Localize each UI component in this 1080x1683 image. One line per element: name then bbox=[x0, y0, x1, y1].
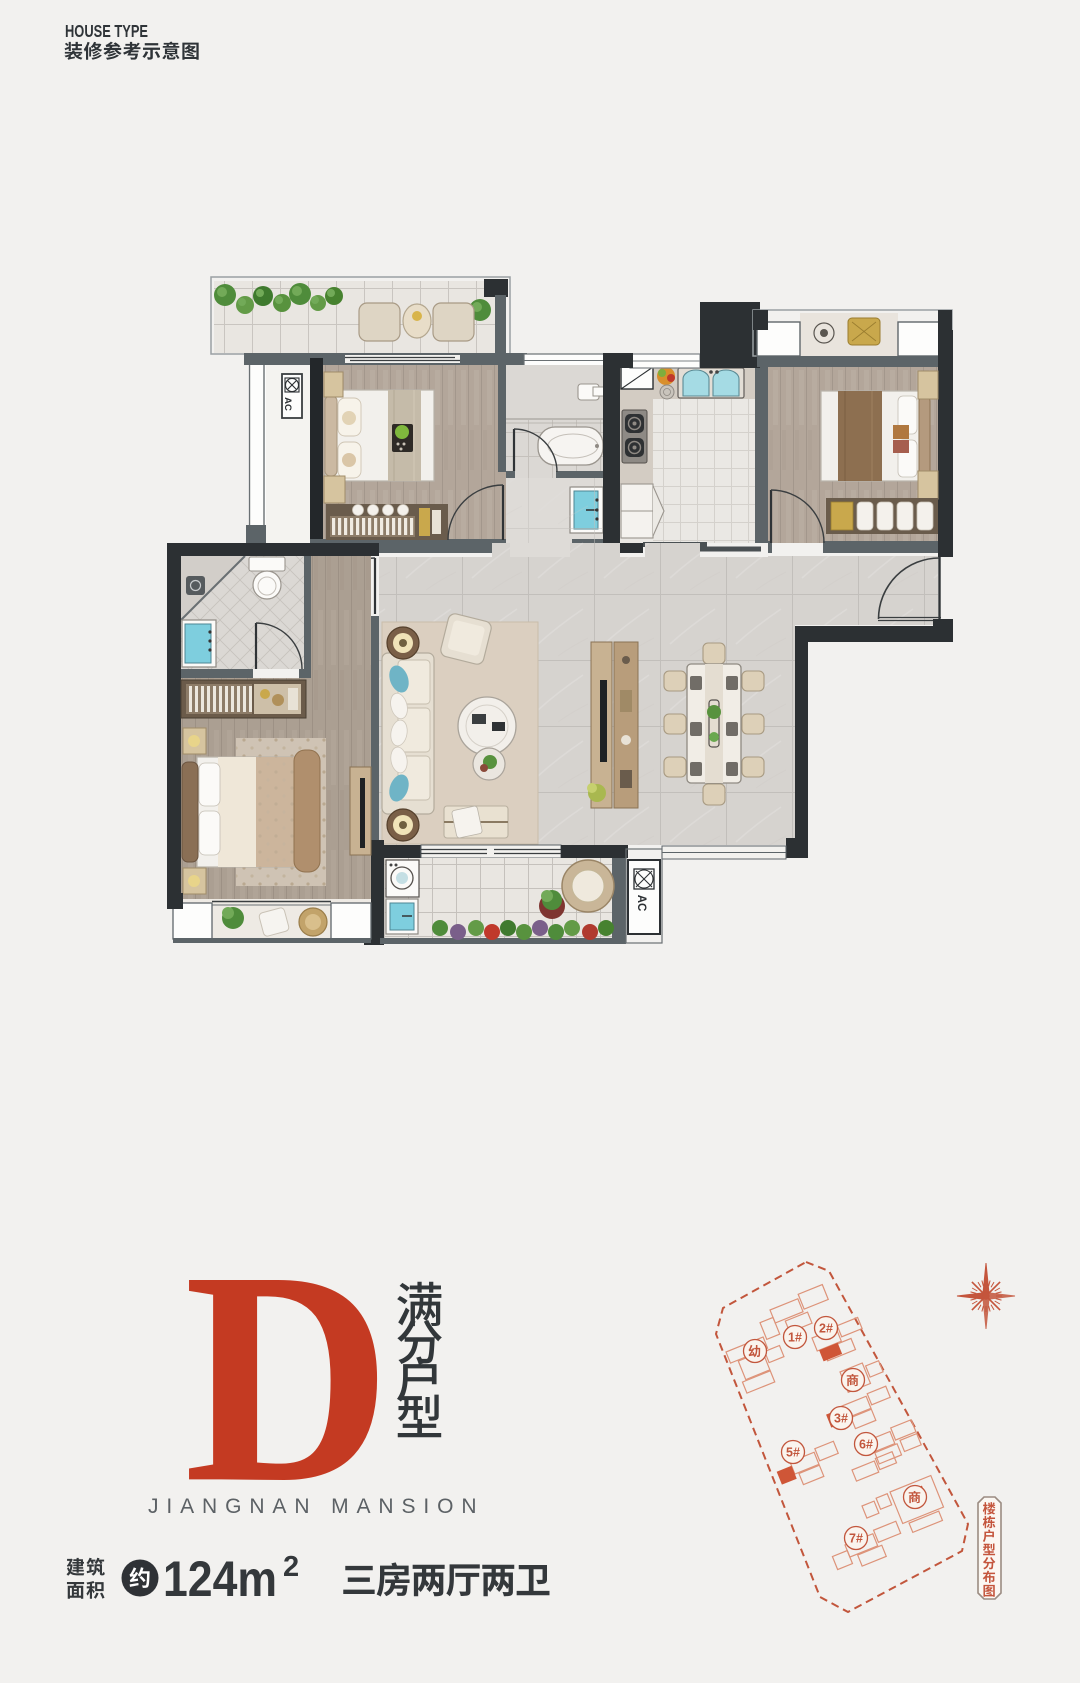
svg-text:2#: 2# bbox=[819, 1322, 833, 1336]
svg-text:AC: AC bbox=[635, 895, 647, 912]
svg-text:JIANGNAN MANSION: JIANGNAN MANSION bbox=[148, 1495, 484, 1518]
svg-text:5#: 5# bbox=[786, 1446, 800, 1460]
svg-text:1#: 1# bbox=[788, 1331, 802, 1345]
svg-text:HOUSE TYPE: HOUSE TYPE bbox=[65, 21, 148, 41]
svg-text:124m: 124m bbox=[163, 1551, 277, 1607]
svg-text:2: 2 bbox=[283, 1551, 299, 1583]
svg-text:3#: 3# bbox=[834, 1412, 848, 1426]
svg-text:6#: 6# bbox=[859, 1438, 873, 1452]
svg-text:AC: AC bbox=[282, 397, 293, 411]
svg-text:7#: 7# bbox=[849, 1532, 863, 1546]
